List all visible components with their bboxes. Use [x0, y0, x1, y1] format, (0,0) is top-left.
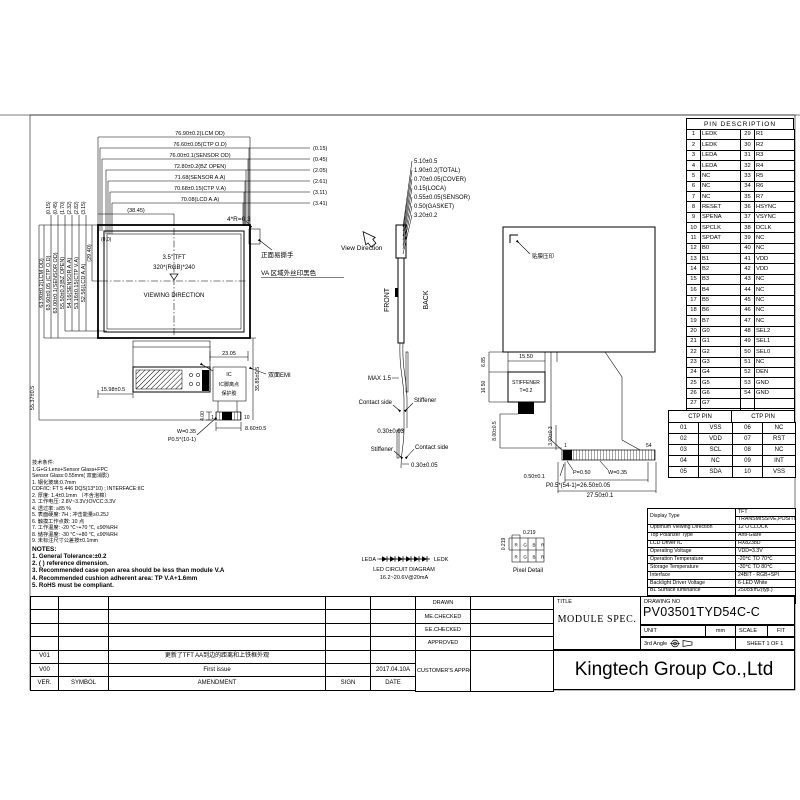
- back-pin54: 54: [646, 443, 652, 449]
- table-cell: [371, 623, 416, 636]
- text-line: 4. Recommended cushion adherent area: TP…: [32, 575, 342, 582]
- table-cell: [109, 637, 326, 650]
- pin-table-title: PIN DESCRIPTION: [686, 118, 794, 129]
- offset-w-3: (2.05): [313, 168, 328, 174]
- table-cell: VER.: [31, 677, 59, 690]
- tech-conditions-lines: 技术条件:1.G+G:Lens+Sensor Glass+FPCSensor G…: [32, 460, 282, 545]
- table-cell: SPDAT: [701, 233, 741, 243]
- text-line: 2. ( ) reference dimension.: [32, 560, 342, 567]
- table-cell: NC: [763, 445, 796, 456]
- table-cell: 35: [741, 192, 755, 202]
- table-cell: [109, 597, 326, 610]
- table-cell: 07: [733, 434, 763, 445]
- pin-description-block: PIN DESCRIPTION 1LEDK29R12LEDK30R23LEDA3…: [686, 118, 794, 420]
- table-cell: NC: [755, 243, 795, 253]
- table-cell: -30℃ TO 80℃: [736, 564, 796, 572]
- notes-title: NOTES:: [32, 546, 342, 553]
- table-cell: -20℃ TO 70℃: [736, 556, 796, 564]
- table-cell: 1: [687, 130, 701, 140]
- sheet-number: SHEET 1 OF 1: [736, 637, 795, 650]
- table-cell: Storage Temperature: [648, 564, 736, 572]
- offset-h-6: (3.15): [81, 201, 87, 214]
- pin-description-table: 1LEDK29R12LEDK30R23LEDA31R34LEDA32R45NC3…: [686, 129, 795, 420]
- text-line: 1. General Tolerance:±0.2: [32, 553, 342, 560]
- table-cell: [371, 650, 416, 663]
- notes-block: NOTES: 1. General Tolerance:±0.22. ( ) r…: [32, 546, 342, 589]
- back-label: BACK: [423, 290, 430, 309]
- dim-ctp-od-w: 76.60±0.05(CTP O.D): [173, 142, 227, 148]
- led-circuit-title: LED CIRCUIT DIAGRAM: [373, 567, 435, 573]
- approval-table: DRAWNME.CHECKEDEE.CHECKEDAPPROVEDCUSTOME…: [415, 596, 554, 692]
- table-cell: SPENA: [701, 212, 741, 222]
- fpc-conn-length: 4.00: [200, 411, 206, 421]
- table-cell: 14: [687, 264, 701, 274]
- table-cell: R7: [755, 192, 795, 202]
- offset-h-1: (0.15): [46, 201, 52, 214]
- table-cell: [59, 650, 109, 663]
- stack-dim-gasket: 0.50(GASKET): [414, 204, 454, 210]
- table-cell: 06: [733, 423, 763, 434]
- table-cell: GND: [755, 388, 795, 398]
- table-cell: 7: [687, 192, 701, 202]
- table-cell: VSS: [763, 467, 796, 478]
- table-cell: B5: [701, 295, 741, 305]
- fpc-tail-length: 35.85±0.5: [255, 367, 261, 391]
- table-cell: [31, 610, 59, 623]
- stiffener-label-1: STIFFENER: [512, 380, 540, 386]
- table-cell: G7: [701, 398, 741, 408]
- table-cell: 2017.04.10A: [371, 663, 416, 676]
- contact-side-bottom: Contact side: [415, 445, 449, 451]
- ctp-table-header: CTP PIN CTP PIN: [668, 410, 795, 422]
- ic-note-1: IC脚离点: [219, 381, 239, 388]
- table-cell: Display Type: [648, 509, 736, 525]
- dim-total-height: 55.37±0.5: [30, 386, 36, 410]
- side-view: [358, 161, 414, 468]
- table-cell: EE.CHECKED: [416, 623, 471, 636]
- table-cell: [31, 637, 59, 650]
- spec-sheet: 76.90±0.2(LCM OD) 76.60±0.05(CTP O.D) 76…: [0, 0, 800, 800]
- third-angle-symbol: [670, 639, 694, 648]
- tail-dim-mid: 0.30±0.03: [377, 429, 404, 435]
- dim-300: 3.00±0.3: [548, 426, 554, 446]
- table-cell: 39: [741, 233, 755, 243]
- offset-h-5: (2.82): [74, 201, 80, 214]
- table-cell: V01: [31, 650, 59, 663]
- offset-w-6: (3.41): [313, 201, 328, 207]
- offset-h-4: (2.32): [67, 201, 73, 214]
- max-thickness: MAX 1.5: [368, 376, 392, 382]
- table-cell: [326, 650, 371, 663]
- ctp-header-left: CTP PIN: [669, 411, 732, 422]
- fpc-pin-pitch: P0.5*(10-1): [168, 437, 196, 443]
- table-cell: SIGN: [326, 677, 371, 690]
- table-cell: SEL2: [755, 326, 795, 336]
- front-label: FRONT: [384, 287, 391, 312]
- table-cell: SCL: [699, 445, 733, 456]
- back-tail-length: 8.00±0.5: [492, 421, 498, 441]
- notes-lines: 1. General Tolerance:±0.22. ( ) referenc…: [32, 553, 342, 589]
- table-cell: LEDK: [701, 130, 741, 140]
- table-cell: [109, 610, 326, 623]
- table-cell: NC: [755, 305, 795, 315]
- table-cell: 52: [741, 367, 755, 377]
- back-pin-width: W=0.35: [608, 470, 627, 476]
- text-line: 5. RoHS must be compliant.: [32, 582, 342, 589]
- stack-dim-loca: 0.15(LOCA): [414, 186, 446, 192]
- table-cell: DRAWN: [416, 597, 471, 610]
- table-cell: R4: [755, 161, 795, 171]
- table-cell: 19: [687, 316, 701, 326]
- table-cell: 02: [669, 434, 699, 445]
- table-cell: G0: [701, 326, 741, 336]
- table-cell: NC: [755, 316, 795, 326]
- offset-w-1: (0.15): [313, 146, 328, 152]
- table-cell: 11: [687, 233, 701, 243]
- title-cell: TITLE MODULE SPEC.: [553, 596, 641, 650]
- table-cell: VDD: [755, 254, 795, 264]
- table-cell: Interface: [648, 572, 736, 580]
- table-cell: [326, 610, 371, 623]
- dim-ctp-va-h: 53.16±0.15(CTP V.A): [74, 257, 80, 309]
- drawing-no-value: PV03501TYD54C-C: [641, 605, 794, 619]
- table-cell: LEDA: [701, 161, 741, 171]
- table-cell: APPROVED: [416, 637, 471, 650]
- text-line: 9. 未标注尺寸公差按±0.1mm: [32, 538, 282, 545]
- table-cell: 9: [687, 212, 701, 222]
- panel-resolution: 320*(RGB)*240: [153, 265, 195, 271]
- table-cell: VDD: [755, 264, 795, 274]
- pixel-detail-label: Pixel Detail: [513, 568, 543, 574]
- table-cell: G6: [701, 388, 741, 398]
- table-cell: VSYNC: [755, 212, 795, 222]
- text-line: 3. Recommended case open area should be …: [32, 567, 342, 574]
- company-cell: Kingtech Group Co.,Ltd: [553, 650, 795, 690]
- table-cell: 12: [687, 243, 701, 253]
- table-cell: [741, 398, 755, 408]
- table-cell: G5: [701, 378, 741, 388]
- pixel-dim-w: 0.219: [523, 530, 536, 536]
- dim-685: 6.85: [481, 357, 487, 367]
- table-cell: R3: [755, 150, 795, 160]
- table-cell: 16: [687, 285, 701, 295]
- table-cell: INT: [763, 456, 796, 467]
- left-dimensions: [39, 215, 216, 420]
- table-cell: G1: [701, 336, 741, 346]
- table-cell: [59, 623, 109, 636]
- table-cell: 42: [741, 264, 755, 274]
- table-cell: VDD=3.3V: [736, 548, 796, 556]
- table-cell: 24BIT - RGB+SPI: [736, 572, 796, 580]
- table-cell: NC: [701, 171, 741, 181]
- table-cell: Operation Temperature: [648, 556, 736, 564]
- fpc-pin1: 1: [211, 415, 214, 421]
- led-circuit: [377, 556, 430, 562]
- table-cell: 53: [741, 378, 755, 388]
- table-cell: 44: [741, 285, 755, 295]
- table-cell: SYMBOL: [59, 677, 109, 690]
- table-cell: 32: [741, 161, 755, 171]
- table-cell: [471, 637, 554, 650]
- table-cell: NC: [755, 233, 795, 243]
- table-cell: Anti-Glare: [736, 532, 796, 540]
- table-cell: SEL1: [755, 336, 795, 346]
- ctp-pin-table: 01VSS06NC02VDD07RST03SCL08NC04NC09INT05S…: [668, 422, 796, 478]
- table-cell: 10: [733, 467, 763, 478]
- table-cell: B1: [701, 254, 741, 264]
- table-cell: 13: [687, 254, 701, 264]
- table-cell: TFT: [736, 509, 796, 517]
- table-cell: LEDK: [701, 140, 741, 150]
- stiffener-top: Stiffener: [414, 398, 436, 404]
- table-cell: [326, 597, 371, 610]
- table-cell: 20: [687, 326, 701, 336]
- table-cell: [755, 398, 795, 408]
- viewing-direction-label: VIEWING DIRECTION: [144, 293, 205, 299]
- table-cell: [371, 637, 416, 650]
- tech-conditions-block: 技术条件:1.G+G:Lens+Sensor Glass+FPCSensor G…: [32, 460, 282, 545]
- view-direction-label: View Direction: [341, 245, 383, 252]
- back-pin1: 1: [564, 443, 567, 449]
- table-cell: 26: [687, 388, 701, 398]
- tail-dim-end: 0.30±0.05: [411, 463, 438, 469]
- table-cell: B6: [701, 305, 741, 315]
- table-cell: G2: [701, 347, 741, 357]
- dim-sensor-aa-h: 54.16(SENSOR A.A): [67, 257, 73, 308]
- table-cell: Top Polarizer Type: [648, 532, 736, 540]
- table-cell: 5: [687, 171, 701, 181]
- table-cell: 33: [741, 171, 755, 181]
- unit-label: UNIT: [640, 625, 706, 637]
- va-silkscreen-note: VA 区域外丝印黑色: [261, 268, 317, 277]
- back-pitch-total: P0.5*(54-1)=26.50±0.05: [546, 483, 611, 489]
- offset-h-3: (1.70): [60, 201, 66, 214]
- table-cell: 41: [741, 254, 755, 264]
- projection-angle: 3rd Angle: [640, 637, 736, 650]
- table-cell: 3: [687, 150, 701, 160]
- stack-dim-total-od: 5.10±0.5: [414, 159, 438, 165]
- table-cell: 12 O'CLOCK: [736, 524, 796, 532]
- pixel-rgb-row1: RGBR: [515, 543, 550, 548]
- table-cell: 51: [741, 357, 755, 367]
- stiffener-width: 15.50: [519, 354, 533, 360]
- display-spec-table: Display TypeTFTTRANSMISSIVE,POSITIVEOpti…: [647, 508, 796, 604]
- table-cell: 29: [741, 130, 755, 140]
- ctp-header-right: CTP PIN: [732, 411, 794, 422]
- contact-side-top: Contact side: [359, 400, 393, 406]
- led-cathode: LEDK: [434, 557, 449, 563]
- front-view: [98, 221, 344, 338]
- table-cell: [326, 623, 371, 636]
- table-cell: 47: [741, 316, 755, 326]
- stiffener-bottom: Stiffener: [371, 447, 393, 453]
- stiffener-label-2: T=0.2: [520, 388, 533, 394]
- table-cell: 54: [741, 388, 755, 398]
- table-cell: [326, 637, 371, 650]
- table-cell: 15: [687, 274, 701, 284]
- table-cell: R2: [755, 140, 795, 150]
- table-cell: [371, 610, 416, 623]
- table-cell: 43: [741, 274, 755, 284]
- drawing-no-block: DRAWING NO PV03501TYD54C-C UNIT mm SCALE…: [640, 596, 795, 650]
- table-cell: 4: [687, 161, 701, 171]
- table-cell: 6-LED White: [736, 580, 796, 588]
- table-cell: NC: [701, 181, 741, 191]
- dim-lcd-aa-w: 70.08(LCD A.A): [181, 197, 220, 203]
- table-cell: NC: [701, 192, 741, 202]
- stack-dim-total: 1.90±0.2(TOTAL): [414, 168, 460, 174]
- table-cell: 34: [741, 181, 755, 191]
- table-cell: SEL0: [755, 347, 795, 357]
- pixel-dim-h: 0.219: [501, 538, 507, 551]
- table-cell: 2: [687, 140, 701, 150]
- table-cell: HSYNC: [755, 202, 795, 212]
- table-cell: DCLK: [755, 223, 795, 233]
- table-cell: LEDA: [701, 150, 741, 160]
- table-cell: [31, 623, 59, 636]
- table-cell: 46: [741, 305, 755, 315]
- table-cell: 27: [687, 398, 701, 408]
- table-cell: [59, 610, 109, 623]
- table-cell: HX8238D: [736, 540, 796, 548]
- table-cell: 48: [741, 326, 755, 336]
- revision-table: V01更新了TFT AA到边的距离和上铁框外观V00First issue201…: [30, 596, 416, 691]
- fpc-left-offset: 15.98±0.5: [101, 387, 125, 393]
- table-cell: 09: [733, 456, 763, 467]
- drawing-no-label: DRAWING NO: [641, 597, 794, 605]
- table-cell: 30: [741, 140, 755, 150]
- panel-size-label: 3.5" TFT: [162, 255, 185, 261]
- corner-radius-note: 4*R=0.3: [227, 216, 251, 223]
- table-cell: B2: [701, 264, 741, 274]
- table-cell: B7: [701, 316, 741, 326]
- table-cell: 49: [741, 336, 755, 346]
- table-cell: BL Surface luminance: [648, 587, 736, 595]
- scale-value: FIT: [768, 625, 795, 637]
- peel-tab-note: 正面易撕手: [261, 250, 294, 259]
- table-cell: Operating Voltage: [648, 548, 736, 556]
- dim-sensor-aa-w: 71.68(SENSOR A.A): [175, 175, 226, 181]
- table-cell: NC: [755, 295, 795, 305]
- table-cell: 更新了TFT AA到边的距离和上铁框外观: [109, 650, 326, 663]
- table-cell: DEN: [755, 367, 795, 377]
- table-cell: 05: [669, 467, 699, 478]
- emi-note: 双面EMI: [268, 372, 291, 379]
- table-cell: LCD Driver IC: [648, 540, 736, 548]
- table-cell: 22: [687, 347, 701, 357]
- table-cell: [471, 650, 554, 691]
- table-cell: Backlight Driver Voltage: [648, 580, 736, 588]
- title-label: TITLE: [554, 597, 640, 605]
- table-cell: NC: [763, 423, 796, 434]
- table-cell: [59, 663, 109, 676]
- table-cell: VSS: [699, 423, 733, 434]
- table-cell: R1: [755, 130, 795, 140]
- back-view: [489, 227, 656, 493]
- dim-lcm-od-w: 76.90±0.2(LCM OD): [175, 131, 225, 137]
- table-cell: R6: [755, 181, 795, 191]
- table-cell: NC: [699, 456, 733, 467]
- table-cell: 25: [687, 378, 701, 388]
- projection-angle-label: 3rd Angle: [644, 641, 667, 647]
- fpc-pin-width: W=0.35: [177, 429, 196, 435]
- back-pitch: P=0.50: [573, 470, 591, 476]
- dim-half-width: (38.45): [127, 208, 145, 214]
- fpc-pin10: 10: [244, 415, 250, 421]
- table-cell: 8: [687, 202, 701, 212]
- fpc-fold-width: 23.05: [222, 351, 236, 357]
- table-cell: G4: [701, 367, 741, 377]
- table-cell: 31: [741, 150, 755, 160]
- table-cell: TRANSMISSIVE,POSITIVE: [736, 516, 796, 524]
- table-cell: 08: [733, 445, 763, 456]
- table-cell: 45: [741, 295, 755, 305]
- table-cell: 10: [687, 223, 701, 233]
- table-cell: VDD: [699, 434, 733, 445]
- table-cell: Optimum Viewing Direction: [648, 524, 736, 532]
- dim-bz-open-w: 72.80±0.2(BZ OPEN): [174, 164, 226, 170]
- unit-value: mm: [706, 625, 736, 637]
- back-dim-050: 0.50±0.1: [524, 474, 545, 480]
- table-cell: ME.CHECKED: [416, 610, 471, 623]
- offset-w-4: (2.61): [313, 179, 328, 185]
- dim-ctp-va-w: 70.68±0.15(CTP V.A): [174, 186, 226, 192]
- table-cell: First issue: [109, 663, 326, 676]
- table-cell: [471, 610, 554, 623]
- table-cell: RST: [763, 434, 796, 445]
- table-cell: NC: [755, 274, 795, 284]
- table-cell: 18: [687, 305, 701, 315]
- table-cell: SDA: [699, 467, 733, 478]
- scale-label: SCALE: [736, 625, 768, 637]
- table-cell: [326, 663, 371, 676]
- table-cell: R5: [755, 171, 795, 181]
- table-cell: 38: [741, 223, 755, 233]
- table-cell: SPCLK: [701, 223, 741, 233]
- film-print-note: 贴膜压印: [532, 252, 555, 260]
- dim-sensor-od-w: 76.00±0.1(SENSOR OD): [169, 153, 230, 159]
- dim-1650: 16.50: [481, 381, 487, 394]
- offset-w-2: (0.45): [313, 157, 328, 163]
- table-cell: 17: [687, 295, 701, 305]
- table-cell: 03: [669, 445, 699, 456]
- dim-ctp-od-h: 63.60±0.05 (CTP O.D): [46, 255, 52, 310]
- stack-dim-sensor: 0.55±0.05(SENSOR): [414, 195, 470, 201]
- table-cell: [59, 637, 109, 650]
- dim-lcm-od-h: 63.90±0.2(LCM OD): [39, 258, 45, 308]
- table-cell: [471, 623, 554, 636]
- table-cell: NC: [755, 357, 795, 367]
- table-cell: [59, 597, 109, 610]
- dim-sensor-od-h: 63.00±0.1(SENSOR OD): [53, 252, 59, 313]
- table-cell: AMENDMENT: [109, 677, 326, 690]
- stack-dim-cover: 0.70±0.05(COVER): [414, 177, 466, 183]
- table-cell: DATE: [371, 677, 416, 690]
- stack-dim-lcd: 3.20±0.2: [414, 213, 438, 219]
- table-cell: [109, 623, 326, 636]
- table-cell: NC: [755, 285, 795, 295]
- dim-lcd-aa-h: 52.56(LCD A.A): [81, 264, 87, 303]
- fpc-conn-width: 8.60±0.5: [245, 426, 266, 432]
- title-text: MODULE SPEC.: [554, 614, 640, 625]
- offset-h-2: (0.45): [53, 201, 59, 214]
- company-name: Kingtech Group Co.,Ltd: [575, 659, 774, 681]
- table-cell: 23: [687, 357, 701, 367]
- table-cell: B3: [701, 274, 741, 284]
- dim-bz-open-h: 55.50±0.2(BZ OPEN): [60, 257, 66, 309]
- table-cell: 37: [741, 212, 755, 222]
- table-cell: 36: [741, 202, 755, 212]
